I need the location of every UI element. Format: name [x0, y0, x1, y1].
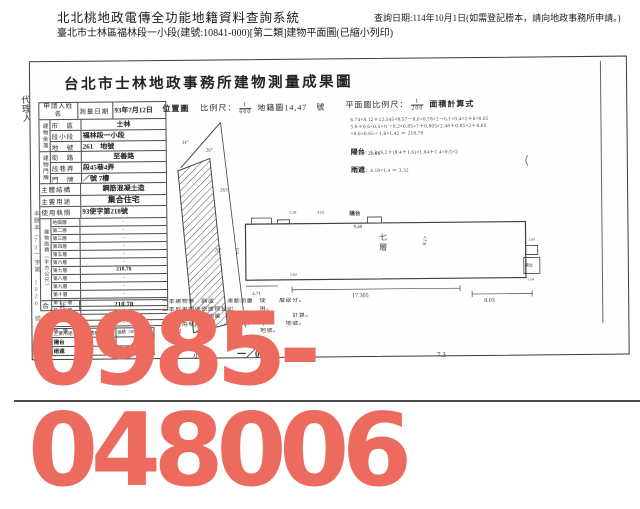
balcony-total: ＝ 22.06 [361, 150, 381, 157]
plan-dim-462: 4.62 [317, 209, 324, 214]
plan-dim-940: 9.40 [353, 225, 362, 230]
watermark-phone-number: 0985-048006 [28, 299, 640, 501]
door-label: 門 牌 [50, 174, 81, 184]
structure-label: 主體結構 [40, 184, 80, 195]
calc-title: 面積計算式 [429, 99, 474, 108]
plan-top-balcony-label: 陽台 [349, 209, 360, 217]
parcel-subtitle: 臺北市士林區福林段一小段(建號:10841-000)[第二類]建物平面圖(已縮小… [57, 24, 393, 39]
location-group-label: 建物坐落 [39, 120, 49, 151]
plan-dim-528: 5.28 [289, 210, 296, 215]
plan-dim-104: 1.04 [528, 277, 534, 281]
survey-date-value: 93年7月12日 [112, 102, 165, 119]
document-title: 台北市士林地政事務所建物測量成果圖 [64, 70, 353, 94]
license-label: 使用執照 [40, 207, 80, 218]
map-annotation: 34° [182, 141, 189, 146]
stray-mark: （ [518, 153, 529, 169]
plan-dim-562: 5.62 [290, 272, 297, 277]
lane-label: 段巷弄 [50, 163, 81, 173]
calc-line-3: ×0.6×0.65－1.6×1.42 ＝ 218.78 [351, 130, 424, 138]
plan-dim-851: 8.51 [235, 247, 240, 254]
plan-scale-label: 平面圖比例尺： [345, 100, 408, 110]
use-label: 主要用途 [40, 195, 80, 206]
section-label: 段小段 [50, 131, 81, 141]
plan-right-balcony-label: 陽台 [525, 262, 533, 268]
plan-scale-denominator: 200 [411, 106, 423, 112]
address-group-label: 建物門牌 [40, 152, 50, 183]
canopy-calc-line: 雨遮：4.18×1.4 ＝ 3.32 [351, 159, 409, 178]
map-annotation: 263 [220, 188, 228, 193]
building-info-table: 申請人姓名 測量日期 93年7月12日 建物坐落 市 區士林 段小段福林段一小段… [38, 101, 168, 311]
structure-value: 鋼筋混凝土造 [80, 183, 166, 194]
survey-date-label: 測量日期 [77, 103, 112, 119]
plan-dim-260: 2.60 [529, 237, 535, 241]
query-date: 查詢日期:114年10月1日(如需登記謄本，請向地政事務所申請。) [374, 11, 621, 24]
license-value: 93使字第218號 [80, 206, 166, 217]
parcel-label: 地 號 [50, 142, 81, 152]
plan-scale-fraction: 1200 [411, 99, 423, 112]
plan-floor-label: 七層 [378, 233, 389, 253]
city-label: 市 區 [49, 120, 80, 130]
applicant-label: 申請人姓名 [39, 103, 77, 119]
map-sheet-label: 地籍圖14,47 號 [257, 103, 325, 113]
use-value: 集合住宅 [80, 194, 166, 205]
canopy-calc: ：4.18×1.4 ＝ 3.32 [365, 169, 409, 174]
canopy-label: 雨遮 [351, 166, 365, 174]
map-annotation: 26° [215, 248, 222, 253]
map-annotation: 26° [206, 149, 213, 154]
street-label: 街 路 [50, 152, 81, 162]
plan-scale-caption: 平面圖比例尺：1200 面積計算式 [345, 98, 474, 112]
